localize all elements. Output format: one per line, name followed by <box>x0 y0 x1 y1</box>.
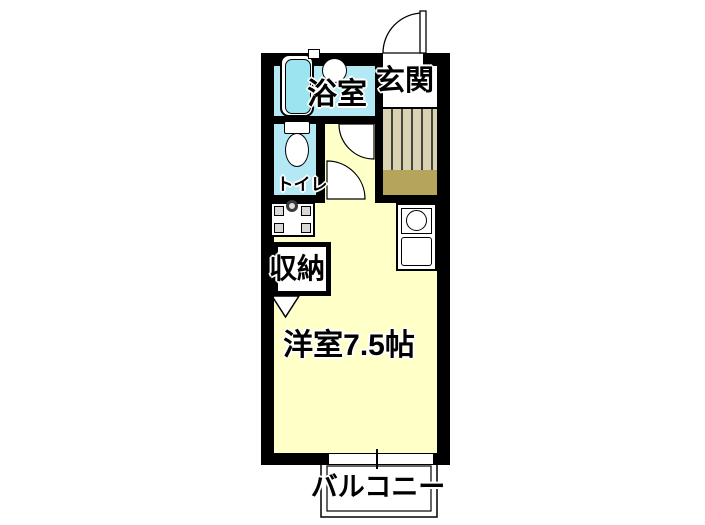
pan-corner <box>274 206 284 216</box>
pan-corner <box>274 223 284 233</box>
kitchen-counter-box <box>401 237 432 266</box>
kitchen-unit <box>396 203 437 271</box>
bath-faucet <box>308 49 320 59</box>
kitchen-sink-circle <box>406 210 427 231</box>
wall-entrance-bottom <box>375 195 450 203</box>
wall-bottom-right <box>433 453 450 465</box>
window <box>329 453 433 465</box>
toilet-bowl <box>285 133 309 167</box>
pan-corner <box>301 206 311 216</box>
bathroom-door-swing <box>339 124 374 159</box>
entrance-door-leaf <box>420 11 426 53</box>
pan-corner <box>301 223 311 233</box>
kitchen-sink-box <box>401 208 432 234</box>
entrance-label: 玄関 <box>355 66 455 96</box>
wall-right <box>437 53 450 465</box>
western-room-label: 洋室7.5帖 <box>249 330 449 362</box>
wall-bottom-left <box>261 453 329 465</box>
window-center-tick <box>376 449 378 469</box>
toilet-label: トイレ <box>262 174 342 194</box>
entrance-door-swing <box>383 13 423 53</box>
balcony-label: バルコニー <box>278 472 478 502</box>
closet-arrow <box>272 296 299 317</box>
pan-faucet-icon <box>286 200 298 212</box>
floorplan: 浴室 玄関 トイレ 収納 洋室7.5帖 バルコニー <box>0 0 705 525</box>
storage-label: 収納 <box>247 254 347 284</box>
